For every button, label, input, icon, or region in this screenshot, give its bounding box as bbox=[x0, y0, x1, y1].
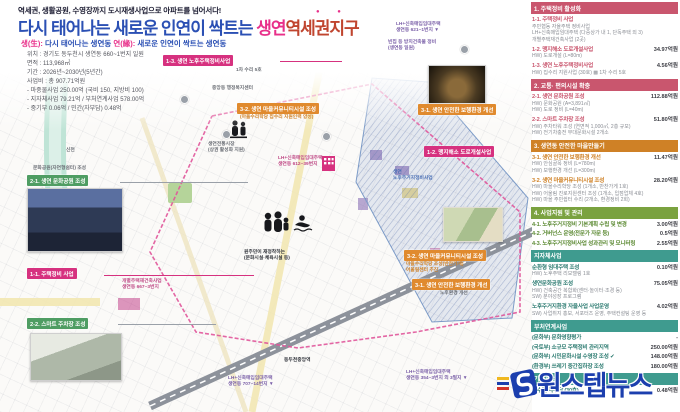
subtitle-yeon-text: 새로운 인연이 싹트는 생연동 bbox=[135, 39, 226, 48]
zone-caption: 생연 노후주거지정비사업 bbox=[393, 170, 433, 183]
map-label-2-1: 2-1. 생연 문화공원 조성 bbox=[27, 175, 88, 186]
map-label-3-2-top-sub: (마을수리학당 집수리 지원인력 양성) bbox=[240, 115, 313, 121]
section-header: 부처연계사업 bbox=[531, 320, 678, 332]
watermark-text: 원스텝뉴스 bbox=[537, 364, 651, 403]
photo-park-aerial bbox=[443, 207, 503, 242]
item-subs: HW) 도로개설 (L=80m) bbox=[532, 53, 678, 60]
item-title: (문화부) 문화영향평가 bbox=[532, 333, 581, 341]
item-amount: 180.00억원 bbox=[651, 362, 678, 370]
school-poi-icon bbox=[222, 130, 231, 139]
legend-item: 2-2. 스마트 주차장 조성51.80억원 HW) 주차타워 조성 (연면적 … bbox=[532, 115, 678, 137]
photo-culture-park bbox=[27, 188, 123, 252]
item-subs: HW) 주차타워 조성 (연면적 1,000㎡, 2층 규모) HW) 전기차충… bbox=[532, 124, 678, 137]
photo-night-street bbox=[428, 65, 486, 104]
item-subs: HW) 집수리 지원사업 (30호) ▩ 1차 수리 5호 bbox=[532, 70, 678, 77]
subtitle-saeng-label: 생(生): bbox=[21, 39, 43, 48]
map-label-3-2-low: 3-2. 생연 마을커뮤니티시설 조성 bbox=[404, 250, 486, 261]
legend-section-housing: 1. 주택정비 활성화 1-1. 주택정비 사업 주민협동 자율주택 정비사업 … bbox=[531, 2, 678, 76]
legend-item: (문화부) 문화영향평가- bbox=[532, 333, 678, 341]
item-amount: 0.48억원 bbox=[657, 386, 678, 394]
subtitle-yeon-label: 연(緣): bbox=[113, 39, 135, 48]
item-subs: HW) 문화공원 (A=3,891㎡) HW) 도로 정비 (L=40m) bbox=[532, 101, 678, 114]
map-label-1-1: 1-1. 주택정비 사업 bbox=[27, 268, 77, 279]
section-header: 1. 주택정비 활성화 bbox=[531, 2, 678, 14]
section-header: 3. 생연동 안전한 마을만들기 bbox=[531, 140, 678, 152]
item-title: 4-2. 거버넌스 운영(전문가 자문 등) bbox=[532, 229, 609, 237]
item-amount: 11.47억원 bbox=[654, 153, 678, 161]
item-subs: 주민협동 자율주택 정비사업 LH+신축매입임대주택 (다중상가 내 1, 단독… bbox=[532, 24, 678, 44]
item-amount: - bbox=[676, 335, 678, 341]
news-watermark: 원스텝뉴스 bbox=[497, 364, 651, 403]
item-amount: 112.88억원 bbox=[651, 92, 678, 100]
map-label-3-1-low: 3-1. 생연 안전한 보행환경 개선 bbox=[412, 279, 490, 290]
stream-label: 신천 bbox=[66, 148, 75, 154]
map-label-2-1-above: 문화공원(자연형쉼터) 조성 bbox=[33, 166, 86, 172]
legend-item: 1-2. 맹지해소 도로개설사업34.97억원 HW) 도로개설 (L=80m) bbox=[532, 45, 678, 60]
legend-section-transport: 2. 교통· 편의시설 확충 2-1. 생연 문화공원 조성112.88억원 H… bbox=[531, 79, 678, 137]
title-part-pink: 생연 bbox=[256, 19, 285, 38]
subtitle: 생(生): 다시 태어나는 생연동 연(緣): 새로운 인연이 싹트는 생연동 bbox=[21, 38, 226, 49]
item-title: 4-3. 노후주거지정비사업 성과관리 및 모니터링 bbox=[532, 239, 635, 247]
item-title: 1-3. 생연 노후주택정비사업 bbox=[532, 61, 593, 69]
item-title: 생연문화공원 조성 bbox=[532, 279, 573, 287]
legend-section-management: 4. 사업지원 및 관리 4-1. 노후주거지정비 기본계획 수립 및 변경3.… bbox=[531, 207, 678, 247]
item-title: 순환형 임대주택 조성 bbox=[532, 263, 579, 271]
lh-pin-3: LH+신축매입임대주택 생연동 707~14번지 ▼ bbox=[228, 376, 274, 389]
map-label-2-2: 2-2. 스마트 주차장 조성 bbox=[27, 318, 88, 329]
legend-section-community: 3. 생연동 안전한 마을만들기 3-1. 생연 안전한 보행환경 개선11.4… bbox=[531, 140, 678, 204]
legend-item: 1-1. 주택정비 사업 주민협동 자율주택 정비사업 LH+신축매입임대주택 … bbox=[532, 15, 678, 43]
item-title: 노후주거지환경 자율사업 사업운영 bbox=[532, 302, 609, 310]
item-amount: 4.02억원 bbox=[657, 302, 678, 310]
item-title: (문화부) 시민문화시설 수영장 조성 ✔ bbox=[532, 352, 614, 360]
item-title: (국토부) 소규모 주택정비 관리지역 bbox=[532, 343, 609, 351]
item-amount: 34.97억원 bbox=[654, 45, 678, 53]
leader-line bbox=[104, 275, 254, 276]
item-title: 3-1. 생연 안전한 보행환경 개선 bbox=[532, 153, 601, 161]
station-label: 동두천중앙역 bbox=[284, 358, 310, 364]
section-header: 지자체사업 bbox=[531, 250, 678, 262]
map-label-1-1-note: 개별주택재건축사업 생연동 667~3번지 bbox=[122, 279, 162, 292]
item-amount: 4.56억원 bbox=[657, 61, 678, 69]
item-title: 4-1. 노후주거지정비 기본계획 수립 및 변경 bbox=[532, 220, 627, 228]
project-info: 위치 : 경기도 동두천시 생연동 660~1번지 일원 면적 : 113,96… bbox=[27, 51, 144, 114]
item-amount: 3.00억원 bbox=[657, 220, 678, 228]
map-label-1-3: 1-3. 생연 노후주택정비사업 bbox=[163, 55, 233, 66]
map-label-1-3-sub: 1차 수리 5호 bbox=[236, 68, 262, 74]
item-subs: HW) 건축공간 복합화(센터·놀이터·조경 등) SW) 분야성장 프로그램 bbox=[532, 288, 678, 301]
item-amount: 2.55억원 bbox=[657, 239, 678, 247]
admin-center-caption: 중앙동 행정복지센터 bbox=[212, 86, 253, 92]
item-amount: 28.20억원 bbox=[654, 176, 678, 184]
legend-item: (국토부) 소규모 주택정비 관리지역250.00억원 bbox=[532, 343, 678, 351]
item-subs: HW) 마을수리학당 조성 (1개소, 반찬가게 1호) HW) 어울림 진로지… bbox=[532, 184, 678, 204]
section-header: 4. 사업지원 및 관리 bbox=[531, 207, 678, 219]
item-amount: 0.10억원 bbox=[657, 263, 678, 271]
item-subs: HW) 노후주택 리모델링 1호 bbox=[532, 271, 678, 278]
legend-item: 노후주거지환경 자율사업 사업운영4.02억원 SW) 사업취지 홍보, 서포터… bbox=[532, 302, 678, 317]
item-subs: HW) 안심골목 정비 (L=780m) HW) 보행환경 개선 (L=300m… bbox=[532, 161, 678, 174]
residents-caption: 원주민이 재정착하는 (문화시설·체육시설 등) bbox=[244, 250, 290, 263]
legend-item: (문화부) 시민문화시설 수영장 조성 ✔148.00억원 bbox=[532, 352, 678, 360]
item-amount: 250.00억원 bbox=[651, 343, 678, 351]
item-amount: 148.00억원 bbox=[651, 352, 678, 360]
subtitle-saeng-text: 다시 태어나는 생연동 bbox=[43, 39, 113, 48]
legend-section-local-gov: 지자체사업 순환형 임대주택 조성0.10억원 HW) 노후주택 리모델링 1호… bbox=[531, 250, 678, 318]
lh-pin-4: LH+신축매입임대주택 생연동 354~3번지 외 3필지 ▼ bbox=[406, 370, 468, 383]
vacant-buildings-note: 빈집 등 방치건축물 정비 (생연동 일원) bbox=[388, 40, 436, 53]
item-title: 2-2. 스마트 주차장 조성 bbox=[532, 115, 584, 123]
lh-pin-2: LH+신축매입임대주택 생연동 612~39번지 bbox=[278, 156, 323, 169]
item-subs: SW) 사업취지 홍보, 서포터즈 운영, 주택컨설팅 운영 등 bbox=[532, 311, 678, 318]
school-poi-icon bbox=[180, 95, 189, 104]
item-amount: 51.80억원 bbox=[654, 115, 678, 123]
lh-building-icon bbox=[322, 156, 335, 171]
leader-line bbox=[280, 61, 342, 62]
onestep-news-logo-icon bbox=[497, 367, 537, 401]
map-label-3-1-low-sub: 노후환경 개선 bbox=[440, 291, 468, 297]
map-label-3-2-low-sub: 마을수리학당 조성(반찬가게) 어울림센터 추진 bbox=[406, 262, 464, 275]
legend-item: 3-2. 생연 마을커뮤니티시설 조성28.20억원 HW) 마을수리학당 조성… bbox=[532, 176, 678, 204]
item-title: 2-1. 생연 문화공원 조성 bbox=[532, 92, 584, 100]
item-amount: 75.05억원 bbox=[654, 279, 678, 287]
legend-item: 1-3. 생연 노후주택정비사업4.56억원 HW) 집수리 지원사업 (30호… bbox=[532, 61, 678, 76]
leader-line bbox=[120, 182, 248, 183]
legend-item: 4-2. 거버넌스 운영(전문가 자문 등)0.5억원 bbox=[532, 229, 678, 237]
legend-item: 3-1. 생연 안전한 보행환경 개선11.47억원 HW) 안심골목 정비 (… bbox=[532, 153, 678, 175]
item-amount: 0.5억원 bbox=[660, 229, 678, 237]
item-title: 1-1. 주택정비 사업 bbox=[532, 15, 573, 23]
market-caption: 생연전통시장 (상권 활성화 지원) bbox=[208, 142, 245, 155]
map-label-3-1-photo: 3-1. 생연 안전한 보행환경 개선 bbox=[418, 104, 496, 115]
legend-item: 2-1. 생연 문화공원 조성112.88억원 HW) 문화공원 (A=3,89… bbox=[532, 92, 678, 114]
leader-line bbox=[118, 324, 216, 325]
legend-item: 생연문화공원 조성75.05억원 HW) 건축공간 복합화(센터·놀이터·조경 … bbox=[532, 279, 678, 301]
title-part-red: 역세권지구 bbox=[286, 19, 359, 38]
title-part-blue: 다시 태어나는 새로운 인연이 싹트는 bbox=[18, 19, 256, 38]
map-label-1-2: 1-2. 맹지해소 도로개설사업 bbox=[424, 146, 494, 157]
page-title: 다시 태어나는 새로운 인연이 싹트는 생연역세권지구 bbox=[18, 14, 359, 39]
legend-section-ministry: 부처연계사업 (문화부) 문화영향평가- (국토부) 소규모 주택정비 관리지역… bbox=[531, 320, 678, 370]
map-label-3-2-top: 3-2. 생연 마을커뮤니티시설 조성 bbox=[237, 103, 319, 114]
legend-item: 4-3. 노후주거지정비사업 성과관리 및 모니터링2.55억원 bbox=[532, 239, 678, 247]
school-poi-icon bbox=[460, 45, 469, 54]
school-poi-icon bbox=[322, 132, 331, 141]
photo-smart-parking bbox=[30, 333, 122, 381]
item-title: 3-2. 생연 마을커뮤니티시설 조성 bbox=[532, 176, 604, 184]
item-title: 1-2. 맹지해소 도로개설사업 bbox=[532, 45, 593, 53]
legend-item: 4-1. 노후주거지정비 기본계획 수립 및 변경3.00억원 bbox=[532, 220, 678, 228]
section-header: 2. 교통· 편의시설 확충 bbox=[531, 79, 678, 91]
lh-pin-1: LH+신축매입임대주택 생연동 621~1번지 ▼ bbox=[396, 22, 441, 35]
legend-panel: 1. 주택정비 활성화 1-1. 주택정비 사업 주민협동 자율주택 정비사업 … bbox=[531, 2, 678, 410]
legend-item: 순환형 임대주택 조성0.10억원 HW) 노후주택 리모델링 1호 bbox=[532, 263, 678, 278]
